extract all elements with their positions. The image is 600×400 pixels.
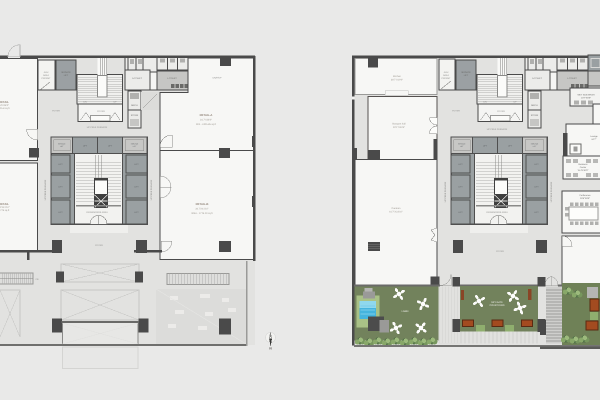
svg-text:Lounge: Lounge	[590, 135, 598, 138]
svg-text:1776 sq.ft: 1776 sq.ft	[0, 209, 10, 212]
svg-text:UP PEDE PASSAGE: UP PEDE PASSAGE	[444, 181, 447, 202]
svg-text:34.7'X28'0": 34.7'X28'0"	[200, 119, 212, 122]
svg-text:FOYER: FOYER	[452, 110, 460, 113]
svg-text:WET SUB WASH: WET SUB WASH	[577, 94, 594, 97]
svg-text:PATIENT: PATIENT	[42, 77, 52, 80]
svg-text:36'7"X19'0": 36'7"X19'0"	[391, 79, 403, 82]
svg-text:61'7"X23'10": 61'7"X23'10"	[389, 211, 403, 214]
svg-text:UP PEDE PASSAGE: UP PEDE PASSAGE	[550, 181, 553, 202]
svg-text:UP PEDE PASSAGE: UP PEDE PASSAGE	[44, 179, 47, 200]
svg-text:Business: Business	[579, 163, 589, 166]
svg-text:MECH: MECH	[131, 104, 138, 107]
svg-text:29'1"X43'5": 29'1"X43'5"	[393, 126, 405, 129]
svg-text:904 - 2405.85 sq.ft: 904 - 2405.85 sq.ft	[196, 123, 216, 126]
svg-text:62'7": 62'7"	[592, 138, 597, 141]
svg-text:LIFT: LIFT	[64, 74, 69, 77]
svg-text:FOYER: FOYER	[95, 244, 103, 247]
svg-text:UP PEDE PASSAGE: UP PEDE PASSAGE	[487, 128, 508, 131]
svg-text:SERVICE: SERVICE	[61, 71, 71, 74]
svg-text:AHU: AHU	[444, 71, 449, 74]
svg-text:MECH: MECH	[531, 104, 538, 107]
svg-text:UP PEDE PASSAGE: UP PEDE PASSAGE	[87, 126, 108, 129]
svg-text:AREA: AREA	[43, 74, 49, 77]
svg-text:UP PEDE PASSAGE: UP PEDE PASSAGE	[150, 179, 153, 200]
svg-text:Conference: Conference	[579, 194, 591, 197]
svg-text:RETAIL-A: RETAIL-A	[200, 113, 213, 117]
svg-text:DN/P/UP: DN/P/UP	[213, 77, 222, 80]
svg-text:FOYER: FOYER	[496, 250, 504, 253]
svg-text:WSA - 1776.29 sq.ft: WSA - 1776.29 sq.ft	[191, 212, 213, 215]
svg-text:STORE: STORE	[131, 114, 139, 117]
svg-text:LAWN: LAWN	[402, 310, 409, 313]
svg-text:FOYER: FOYER	[52, 110, 60, 113]
svg-text:W 4'X10'0": W 4'X10'0"	[578, 169, 589, 172]
svg-text:905.8 sq.ft: 905.8 sq.ft	[0, 107, 10, 110]
svg-text:SERVICE: SERVICE	[461, 71, 471, 74]
svg-text:STORE: STORE	[531, 114, 539, 117]
svg-text:PATIENT: PATIENT	[442, 77, 452, 80]
svg-text:COURTYARD: COURTYARD	[490, 304, 505, 307]
svg-text:Center: Center	[580, 166, 587, 169]
svg-text:LIFT: LIFT	[464, 74, 469, 77]
svg-text:CB: CB	[35, 278, 39, 281]
svg-text:RETAIL-B: RETAIL-B	[196, 202, 209, 206]
svg-text:AREA: AREA	[443, 74, 449, 77]
svg-text:34.7'X41'10": 34.7'X41'10"	[195, 208, 208, 211]
svg-text:10'7"X5'9": 10'7"X5'9"	[581, 97, 591, 100]
svg-text:AHU: AHU	[44, 71, 49, 74]
svg-text:29'5"X8'9": 29'5"X8'9"	[580, 197, 590, 200]
